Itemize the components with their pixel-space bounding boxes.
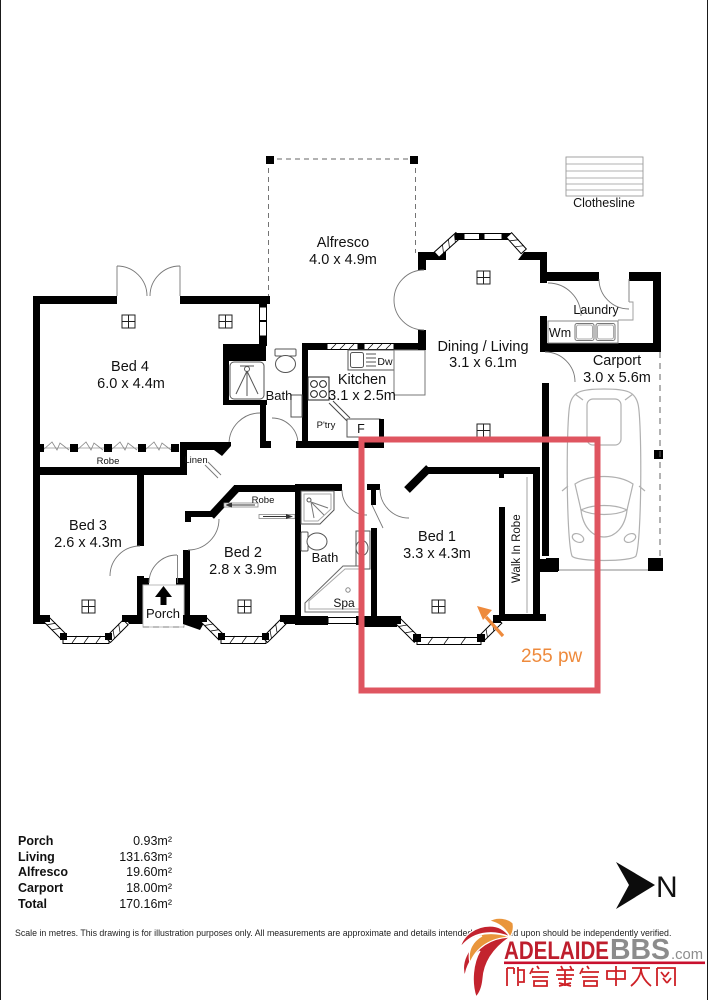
svg-text:Bed 3: Bed 3 [69, 518, 107, 534]
svg-text:Carport: Carport [593, 353, 641, 369]
svg-text:3.1 x 2.5m: 3.1 x 2.5m [328, 388, 396, 404]
svg-text:Wm: Wm [549, 326, 571, 340]
svg-text:BBS: BBS [610, 934, 670, 966]
svg-text:Robe: Robe [252, 495, 275, 506]
svg-text:6.0 x 4.4m: 6.0 x 4.4m [97, 376, 165, 392]
svg-text:ADELAIDE: ADELAIDE [504, 937, 609, 965]
svg-text:.com: .com [671, 946, 703, 963]
svg-text:Clothesline: Clothesline [573, 196, 635, 210]
svg-text:3.3 x 4.3m: 3.3 x 4.3m [403, 546, 471, 562]
svg-text:Alfresco: Alfresco [317, 235, 369, 251]
svg-text:Robe: Robe [97, 456, 120, 467]
svg-text:Living: Living [18, 850, 55, 864]
svg-text:Porch: Porch [18, 834, 53, 848]
svg-text:18.00m²: 18.00m² [126, 881, 172, 895]
svg-text:170.16m²: 170.16m² [119, 897, 172, 911]
svg-text:F: F [357, 422, 365, 436]
svg-text:Walk In Robe: Walk In Robe [511, 514, 523, 583]
svg-text:2.6 x 4.3m: 2.6 x 4.3m [54, 535, 122, 551]
svg-text:2.8 x 3.9m: 2.8 x 3.9m [209, 562, 277, 578]
svg-text:Bed 4: Bed 4 [111, 359, 149, 375]
svg-text:Linen: Linen [184, 455, 207, 466]
svg-text:0.93m²: 0.93m² [133, 834, 172, 848]
svg-text:Bath: Bath [266, 388, 293, 403]
svg-text:Bed 2: Bed 2 [224, 545, 262, 561]
svg-text:Kitchen: Kitchen [338, 372, 386, 388]
svg-text:N: N [656, 871, 678, 904]
svg-text:Bed 1: Bed 1 [418, 529, 456, 545]
svg-text:P'try: P'try [317, 420, 336, 431]
svg-text:131.63m²: 131.63m² [119, 850, 172, 864]
svg-text:Alfresco: Alfresco [18, 865, 68, 879]
svg-text:Bath: Bath [312, 550, 339, 565]
svg-text:Dw: Dw [377, 356, 393, 368]
svg-text:Carport: Carport [18, 881, 64, 895]
svg-text:Dining / Living: Dining / Living [437, 339, 528, 355]
svg-text:Spa: Spa [333, 596, 355, 610]
svg-text:Porch: Porch [146, 606, 180, 621]
svg-text:19.60m²: 19.60m² [126, 865, 172, 879]
svg-text:4.0 x 4.9m: 4.0 x 4.9m [309, 252, 377, 268]
svg-text:3.0 x 5.6m: 3.0 x 5.6m [583, 370, 651, 386]
svg-text:Laundry: Laundry [573, 303, 619, 317]
svg-text:255 pw: 255 pw [521, 646, 583, 667]
svg-text:Total: Total [18, 897, 47, 911]
svg-text:3.1 x 6.1m: 3.1 x 6.1m [449, 355, 517, 371]
